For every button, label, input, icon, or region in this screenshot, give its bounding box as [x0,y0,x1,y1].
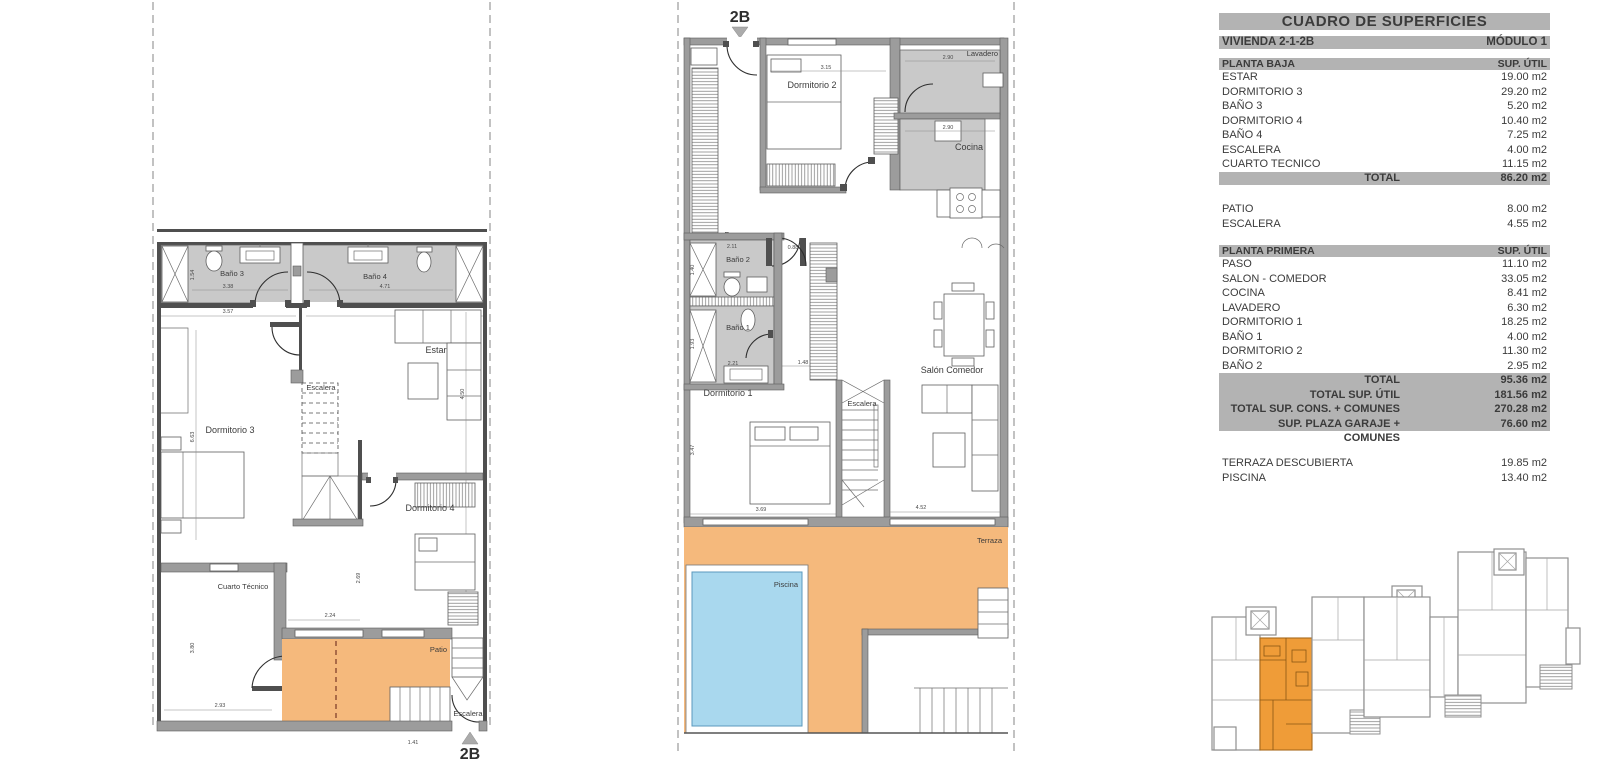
row-value: 11.15 m2 [1502,157,1547,172]
room-label-dormitorio3: Dormitorio 3 [205,425,254,435]
highlighted-unit [1260,638,1312,750]
dim-label: 1.40 [690,265,696,276]
row-value: 18.25 m2 [1501,315,1547,330]
total-value: 95.36 m2 [1501,373,1547,388]
row-value: 4.55 m2 [1507,217,1547,232]
room-label-escalera-ext: Escalera [453,709,483,718]
row-value: 10.40 m2 [1501,114,1547,129]
terraza-cutout [866,633,1008,733]
dim-label: 3.47 [690,445,696,456]
sink-icon [240,244,280,263]
total-row: TOTAL SUP. ÚTIL181.56 m2 [1219,388,1550,403]
row-label: COCINA [1222,286,1265,301]
drawing-sheet: Baño 3 Baño 4 3.38 4.71 1.54 3.57 Escale… [0,0,1620,760]
stair-ground [293,383,363,526]
room-label-dormitorio2: Dormitorio 2 [787,80,836,90]
table-row: TERRAZA DESCUBIERTA19.85 m2 [1219,456,1550,471]
row-value: 6.30 m2 [1507,301,1547,316]
table-row: ESCALERA4.55 m2 [1219,217,1550,232]
wardrobe-icon [767,164,835,186]
row-label: BAÑO 2 [1222,359,1262,374]
closet-icon [448,592,478,625]
room-label-patio: Patio [430,645,447,654]
room-label-cuarto-tecnico: Cuarto Técnico [218,582,269,591]
room-label-terraza: Terraza [977,536,1003,545]
total-row: TOTAL95.36 m2 [1219,373,1550,388]
wardrobe-icon [810,243,837,380]
total-label: TOTAL SUP. ÚTIL [1222,388,1400,403]
total-row-planta-baja: TOTAL 86.20 m2 [1219,172,1550,186]
row-label: ESCALERA [1222,143,1281,158]
window-icon [162,246,188,302]
row-value: 4.00 m2 [1507,143,1547,158]
row-value: 8.41 m2 [1507,286,1547,301]
dim-label: 3.69 [756,507,767,513]
dim-label: 4.50 [460,389,466,400]
plan-marker-2b-first: 2B [730,9,750,26]
dim-label: 6.63 [190,432,196,443]
room-label-dormitorio1: Dormitorio 1 [703,388,752,398]
row-label: BAÑO 1 [1222,330,1262,345]
sink-icon [348,244,388,263]
row-value: 8.00 m2 [1507,202,1547,217]
total-value: 86.20 m2 [1501,172,1547,186]
surface-table-panel: CUADRO DE SUPERFICIES VIVIENDA 2-1-2B MÓ… [1219,0,1550,485]
toilet-icon [724,272,740,296]
row-label: DORMITORIO 3 [1222,85,1302,100]
row-label: LAVADERO [1222,301,1280,316]
total-row: TOTAL SUP. CONS. + COMUNES270.28 m2 [1219,402,1550,417]
row-label: TERRAZA DESCUBIERTA [1222,456,1353,471]
section-title: PLANTA BAJA [1222,58,1295,70]
row-value: 19.85 m2 [1501,456,1547,471]
row-label: ESTAR [1222,70,1258,85]
shelf-band-icon [690,297,774,306]
bed-icon [415,534,475,590]
dim-label: 4.52 [916,505,927,511]
coffee-table-icon [408,363,438,399]
table-row: CUARTO TECNICO11.15 m2 [1219,157,1550,172]
row-label: PATIO [1222,202,1253,217]
total-value: 76.60 m2 [1501,417,1547,432]
table-row: DORMITORIO 329.20 m2 [1219,85,1550,100]
total-row: SUP. PLAZA GARAJE + COMUNES76.60 m2 [1219,417,1550,432]
dim-label: 2.69 [356,573,362,584]
first-floor-plan: 2B Paso Dormitorio 2 3.15 [678,2,1014,753]
dim-label: 2.11 [727,244,737,250]
row-label: PISCINA [1222,471,1266,486]
room-label-escalera-gf: Escalera [306,383,336,392]
total-label: TOTAL [1222,373,1400,388]
table-title: CUADRO DE SUPERFICIES [1219,13,1550,30]
row-label: BAÑO 4 [1222,128,1262,143]
section-column: SUP. ÚTIL [1498,58,1547,70]
room-label-bano2: Baño 2 [726,255,750,264]
room-label-lavadero: Lavadero [967,49,998,58]
dim-label: 1.54 [190,270,196,281]
row-value: 13.40 m2 [1501,471,1547,486]
dim-label: 2.93 [215,703,226,709]
total-label: TOTAL [1222,172,1400,186]
row-value: 11.10 m2 [1502,257,1547,272]
room-label-bano3: Baño 3 [220,269,244,278]
table-row: COCINA8.41 m2 [1219,286,1550,301]
section-marker-arrow-down [732,27,748,38]
table-row: ESTAR19.00 m2 [1219,70,1550,85]
bathtub-icon [724,366,768,383]
sink-icon [747,277,767,292]
dim-label: 3.15 [821,65,832,71]
row-value: 29.20 m2 [1501,85,1547,100]
room-label-piscina: Piscina [774,580,799,589]
dim-label: 4.71 [380,284,391,290]
ground-floor-plan: Baño 3 Baño 4 3.38 4.71 1.54 3.57 Escale… [153,2,490,760]
closet-icon [692,68,718,233]
room-label-bano4: Baño 4 [363,272,387,281]
room-label-estar: Estar [425,345,446,355]
row-value: 7.25 m2 [1507,128,1547,143]
coffee-table-icon [933,433,965,467]
piscina-area [692,572,802,726]
dining-table-icon [934,283,994,366]
table-row: LAVADERO6.30 m2 [1219,301,1550,316]
table-row: SALON - COMEDOR33.05 m2 [1219,272,1550,287]
row-label: DORMITORIO 4 [1222,114,1302,129]
dim-label: 3.80 [190,643,196,654]
stair-patio [390,687,450,723]
stove-icon [937,188,1000,218]
row-value: 11.30 m2 [1502,344,1547,359]
site-key-plan [1212,549,1580,750]
table-row: BAÑO 35.20 m2 [1219,99,1550,114]
section-marker-arrow-up [462,732,478,744]
dim-label: 3.38 [223,284,234,290]
section-title: PLANTA PRIMERA [1222,245,1315,257]
room-label-bano1: Baño 1 [726,323,750,332]
section-column: SUP. ÚTIL [1498,245,1547,257]
table-row: BAÑO 14.00 m2 [1219,330,1550,345]
toilet-icon [417,247,432,272]
section-header-planta-baja: PLANTA BAJA SUP. ÚTIL [1219,58,1550,70]
row-value: 5.20 m2 [1507,99,1547,114]
dim-label: 2.90 [943,55,954,61]
toilet-icon [206,246,222,271]
row-label: SALON - COMEDOR [1222,272,1327,287]
room-label-dormitorio4: Dormitorio 4 [405,503,454,513]
row-value: 19.00 m2 [1501,70,1547,85]
table-row: PISCINA13.40 m2 [1219,471,1550,486]
dim-label: 2.21 [728,361,739,367]
row-label: ESCALERA [1222,217,1281,232]
dim-label: 1.41 [408,740,419,746]
bed-icon [161,437,244,533]
dim-label: 2.24 [325,613,336,619]
table-row: DORMITORIO 211.30 m2 [1219,344,1550,359]
row-value: 2.95 m2 [1507,359,1547,374]
dim-label: 1.93 [690,339,696,350]
row-label: PASO [1222,257,1252,272]
total-label: TOTAL SUP. CONS. + COMUNES [1222,402,1400,417]
row-value: 33.05 m2 [1501,272,1547,287]
table-row: PASO11.10 m2 [1219,257,1550,272]
unit-id: VIVIENDA 2-1-2B [1222,36,1314,49]
dim-label: 3.57 [223,309,234,315]
table-row: DORMITORIO 410.40 m2 [1219,114,1550,129]
table-row: PATIO8.00 m2 [1219,202,1550,217]
row-label: DORMITORIO 1 [1222,315,1302,330]
unit-header-bar: VIVIENDA 2-1-2B MÓDULO 1 [1219,36,1550,49]
row-value: 4.00 m2 [1507,330,1547,345]
module-id: MÓDULO 1 [1486,36,1547,49]
bed-icon [750,422,830,504]
plan-marker-2b-ground: 2B [460,746,480,760]
shaft-icon [874,98,898,154]
table-row: BAÑO 47.25 m2 [1219,128,1550,143]
table-row: ESCALERA4.00 m2 [1219,143,1550,158]
row-label: BAÑO 3 [1222,99,1262,114]
dim-label: 1.48 [798,360,809,366]
row-label: CUARTO TECNICO [1222,157,1320,172]
room-label-salon: Salón Comedor [921,365,984,375]
table-row: DORMITORIO 118.25 m2 [1219,315,1550,330]
section-header-planta-primera: PLANTA PRIMERA SUP. ÚTIL [1219,245,1550,257]
room-label-cocina: Cocina [955,142,983,152]
table-row: BAÑO 22.95 m2 [1219,359,1550,374]
dim-label: 2.90 [943,125,954,131]
total-value: 181.56 m2 [1494,388,1547,403]
window-icon [456,246,483,302]
total-label: SUP. PLAZA GARAJE + COMUNES [1222,417,1400,432]
row-label: DORMITORIO 2 [1222,344,1302,359]
total-value: 270.28 m2 [1494,402,1547,417]
room-label-escalera-ff: Escalera [847,399,877,408]
totals-block: TOTAL95.36 m2 TOTAL SUP. ÚTIL181.56 m2 T… [1219,373,1550,431]
